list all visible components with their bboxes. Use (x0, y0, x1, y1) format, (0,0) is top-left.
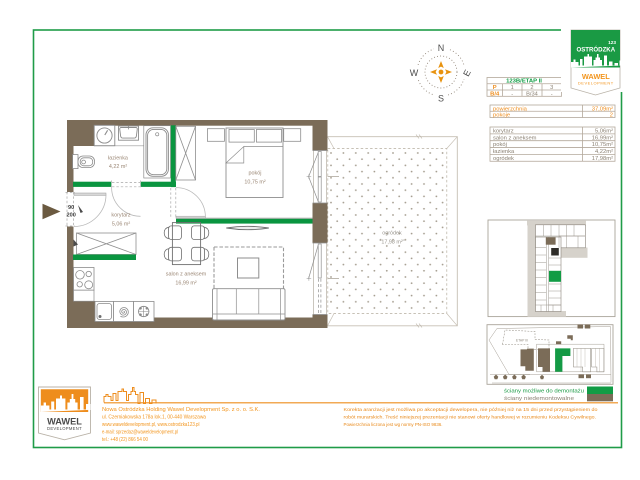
svg-text:www.waweldevelopment.pl, www.o: www.waweldevelopment.pl, www.ostrodzka12… (102, 422, 200, 428)
svg-text:4,22 m²: 4,22 m² (109, 164, 127, 170)
svg-text:ETAP III: ETAP III (516, 339, 528, 343)
svg-text:200: 200 (67, 213, 76, 219)
svg-text:e-mail: sprzedaz@waweldevelopm: e-mail: sprzedaz@waweldevelopment.pl (102, 430, 178, 436)
svg-text:pokoje: pokoje (493, 113, 510, 119)
svg-text:N: N (438, 43, 445, 53)
svg-text:5,06 m²: 5,06 m² (112, 222, 130, 228)
svg-text:OSTRÓDZKA: OSTRÓDZKA (577, 45, 616, 53)
svg-text:pokój: pokój (249, 171, 262, 177)
svg-text:DEVELOPMENT: DEVELOPMENT (578, 80, 614, 85)
svg-text:B/4: B/4 (490, 91, 500, 97)
svg-text:P: P (493, 85, 497, 91)
svg-text:WAWEL: WAWEL (47, 417, 82, 427)
svg-text:"17,98 m²": "17,98 m²" (379, 240, 404, 246)
svg-text:-: - (511, 91, 513, 97)
svg-text:tel.: +48 (22) 866 54 00: tel.: +48 (22) 866 54 00 (102, 437, 148, 443)
svg-text:W: W (410, 68, 419, 78)
svg-text:Nowa Ostródzka Holding Wawel D: Nowa Ostródzka Holding Wawel Development… (102, 407, 260, 413)
svg-text:123: 123 (608, 40, 616, 45)
svg-text:16,99 m²: 16,99 m² (175, 281, 196, 287)
svg-text:123B/ETAP II: 123B/ETAP II (506, 79, 542, 85)
svg-text:3: 3 (550, 85, 553, 91)
svg-text:4,22m²: 4,22m² (595, 149, 613, 155)
svg-text:S: S (438, 94, 444, 104)
svg-text:90: 90 (68, 205, 74, 211)
svg-text:16,99m²: 16,99m² (592, 135, 613, 141)
svg-text:korytarz: korytarz (493, 129, 514, 135)
svg-text:10,75 m²: 10,75 m² (244, 180, 265, 186)
svg-text:2: 2 (610, 113, 613, 119)
svg-text:łazienka: łazienka (108, 156, 128, 162)
svg-text:ogródek: ogródek (382, 231, 402, 237)
svg-text:salon z aneksem: salon z aneksem (166, 272, 207, 278)
svg-text:powierzchnia: powierzchnia (493, 106, 528, 112)
svg-text:5,06m²: 5,06m² (595, 129, 613, 135)
svg-text:10,75m²: 10,75m² (592, 142, 613, 148)
svg-text:korytarz: korytarz (111, 213, 130, 219)
svg-text:robót murarskich. Treść niniej: robót murarskich. Treść niniejszej preze… (344, 415, 597, 421)
svg-text:pokój: pokój (493, 142, 507, 148)
svg-text:2: 2 (530, 85, 533, 91)
svg-text:DEVELOPMENT: DEVELOPMENT (47, 426, 82, 431)
svg-text:37,09m²: 37,09m² (592, 106, 613, 112)
svg-text:salon z aneksem: salon z aneksem (493, 135, 537, 141)
svg-text:ul. Czerniakowska 178a lok.1,: ul. Czerniakowska 178a lok.1, 00-440 War… (102, 414, 206, 420)
svg-text:ściany możliwe do demontażu: ściany możliwe do demontażu (504, 389, 584, 395)
svg-text:ogródek: ogródek (493, 156, 514, 162)
svg-text:-: - (551, 91, 553, 97)
svg-text:Korekta aranżacji jest możliwa: Korekta aranżacji jest możliwa po akcept… (344, 407, 598, 413)
svg-text:łazienka: łazienka (493, 149, 515, 155)
svg-text:ściany niedemontowalne: ściany niedemontowalne (504, 396, 574, 402)
svg-text:Powierzchnia liczona jest wg n: Powierzchnia liczona jest wg normy PN-IS… (344, 422, 443, 428)
svg-text:1: 1 (511, 85, 514, 91)
svg-text:17,98m²: 17,98m² (592, 156, 613, 162)
svg-text:B/34: B/34 (526, 91, 538, 97)
